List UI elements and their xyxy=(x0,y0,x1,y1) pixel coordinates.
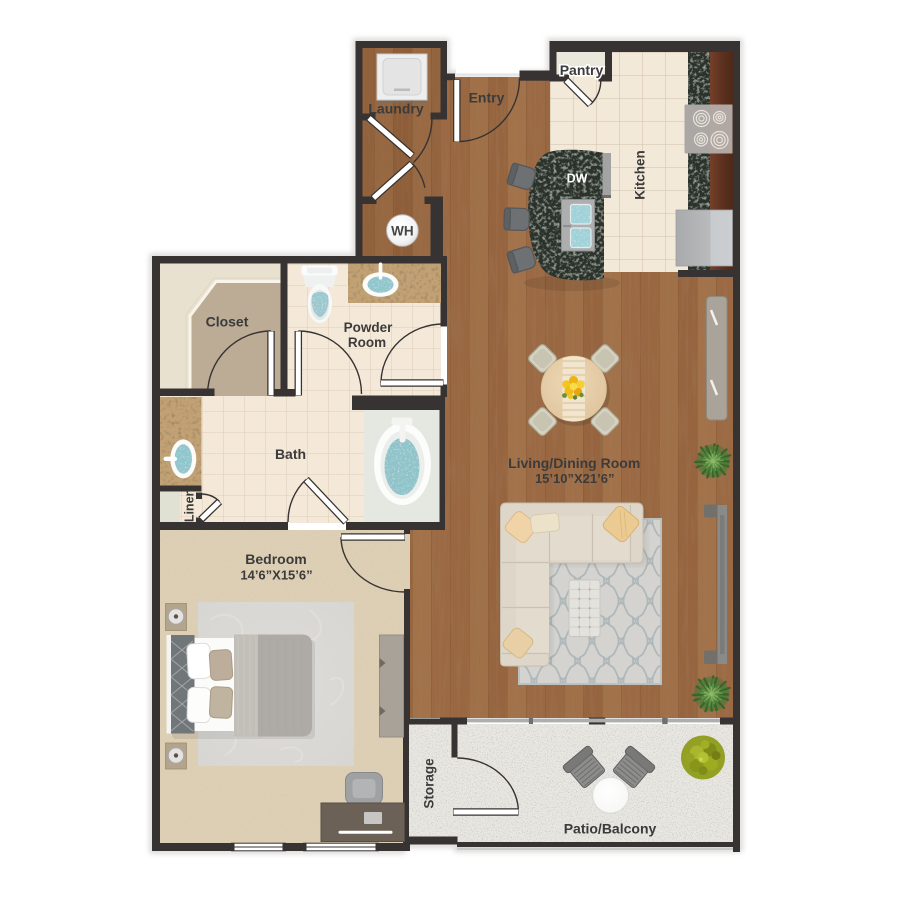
svg-text:Living/Dining Room: Living/Dining Room xyxy=(508,455,640,471)
svg-text:15’10”X21’6”: 15’10”X21’6” xyxy=(535,471,615,486)
svg-text:Linen: Linen xyxy=(183,489,197,522)
svg-text:Bath: Bath xyxy=(275,446,306,462)
svg-text:Closet: Closet xyxy=(206,314,249,330)
svg-text:Entry: Entry xyxy=(469,90,505,106)
svg-text:Kitchen: Kitchen xyxy=(633,150,648,200)
svg-text:Bedroom: Bedroom xyxy=(245,551,306,567)
svg-text:14’6”X15’6”: 14’6”X15’6” xyxy=(240,568,312,583)
svg-text:Storage: Storage xyxy=(422,758,437,809)
svg-text:WH: WH xyxy=(391,224,414,239)
svg-text:DW: DW xyxy=(567,172,588,186)
svg-text:Room: Room xyxy=(348,335,386,350)
svg-text:Laundry: Laundry xyxy=(368,101,423,117)
svg-text:Powder: Powder xyxy=(344,320,394,335)
svg-text:Patio/Balcony: Patio/Balcony xyxy=(564,821,657,837)
svg-text:Pantry: Pantry xyxy=(560,62,604,78)
